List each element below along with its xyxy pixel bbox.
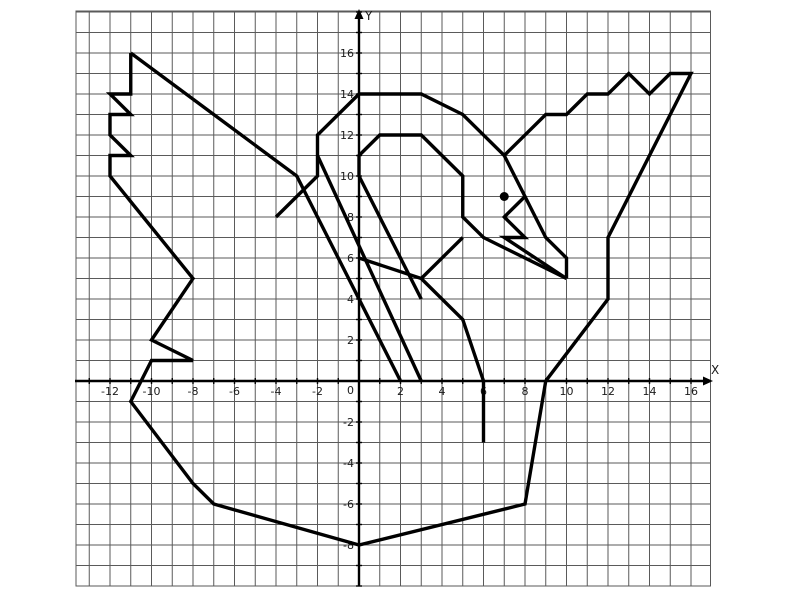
y-tick-label: 6 [347, 252, 354, 265]
x-tick-label: 8 [522, 385, 529, 398]
x-tick-label: -4 [271, 385, 282, 398]
x-tick-label: 2 [397, 385, 404, 398]
y-tick-label: 10 [340, 170, 354, 183]
y-tick-label: -6 [343, 498, 354, 511]
y-axis-title: Y [364, 9, 373, 23]
swan-eye-dot [500, 192, 509, 201]
y-tick-label: 4 [347, 293, 354, 306]
x-tick-label: -8 [188, 385, 199, 398]
y-tick-label: -2 [343, 416, 354, 429]
y-tick-label: -4 [343, 457, 354, 470]
y-tick-label: 2 [347, 334, 354, 347]
x-tick-label: -12 [101, 385, 119, 398]
x-tick-label: -10 [143, 385, 161, 398]
x-tick-label: -2 [312, 385, 323, 398]
x-tick-label: 12 [601, 385, 615, 398]
x-tick-label: 16 [684, 385, 698, 398]
y-tick-label: 12 [340, 129, 354, 142]
coordinate-plane: -12-10-8-6-4-2246810121416-8-6-4-2246810… [0, 0, 800, 600]
x-axis-title: X [711, 363, 719, 377]
x-tick-label: 4 [439, 385, 446, 398]
x-tick-label: -6 [229, 385, 240, 398]
x-tick-label: 14 [643, 385, 657, 398]
graphing-worksheet: -12-10-8-6-4-2246810121416-8-6-4-2246810… [0, 0, 800, 600]
origin-label: 0 [347, 384, 354, 397]
y-tick-label: 16 [340, 47, 354, 60]
x-tick-label: 10 [560, 385, 574, 398]
